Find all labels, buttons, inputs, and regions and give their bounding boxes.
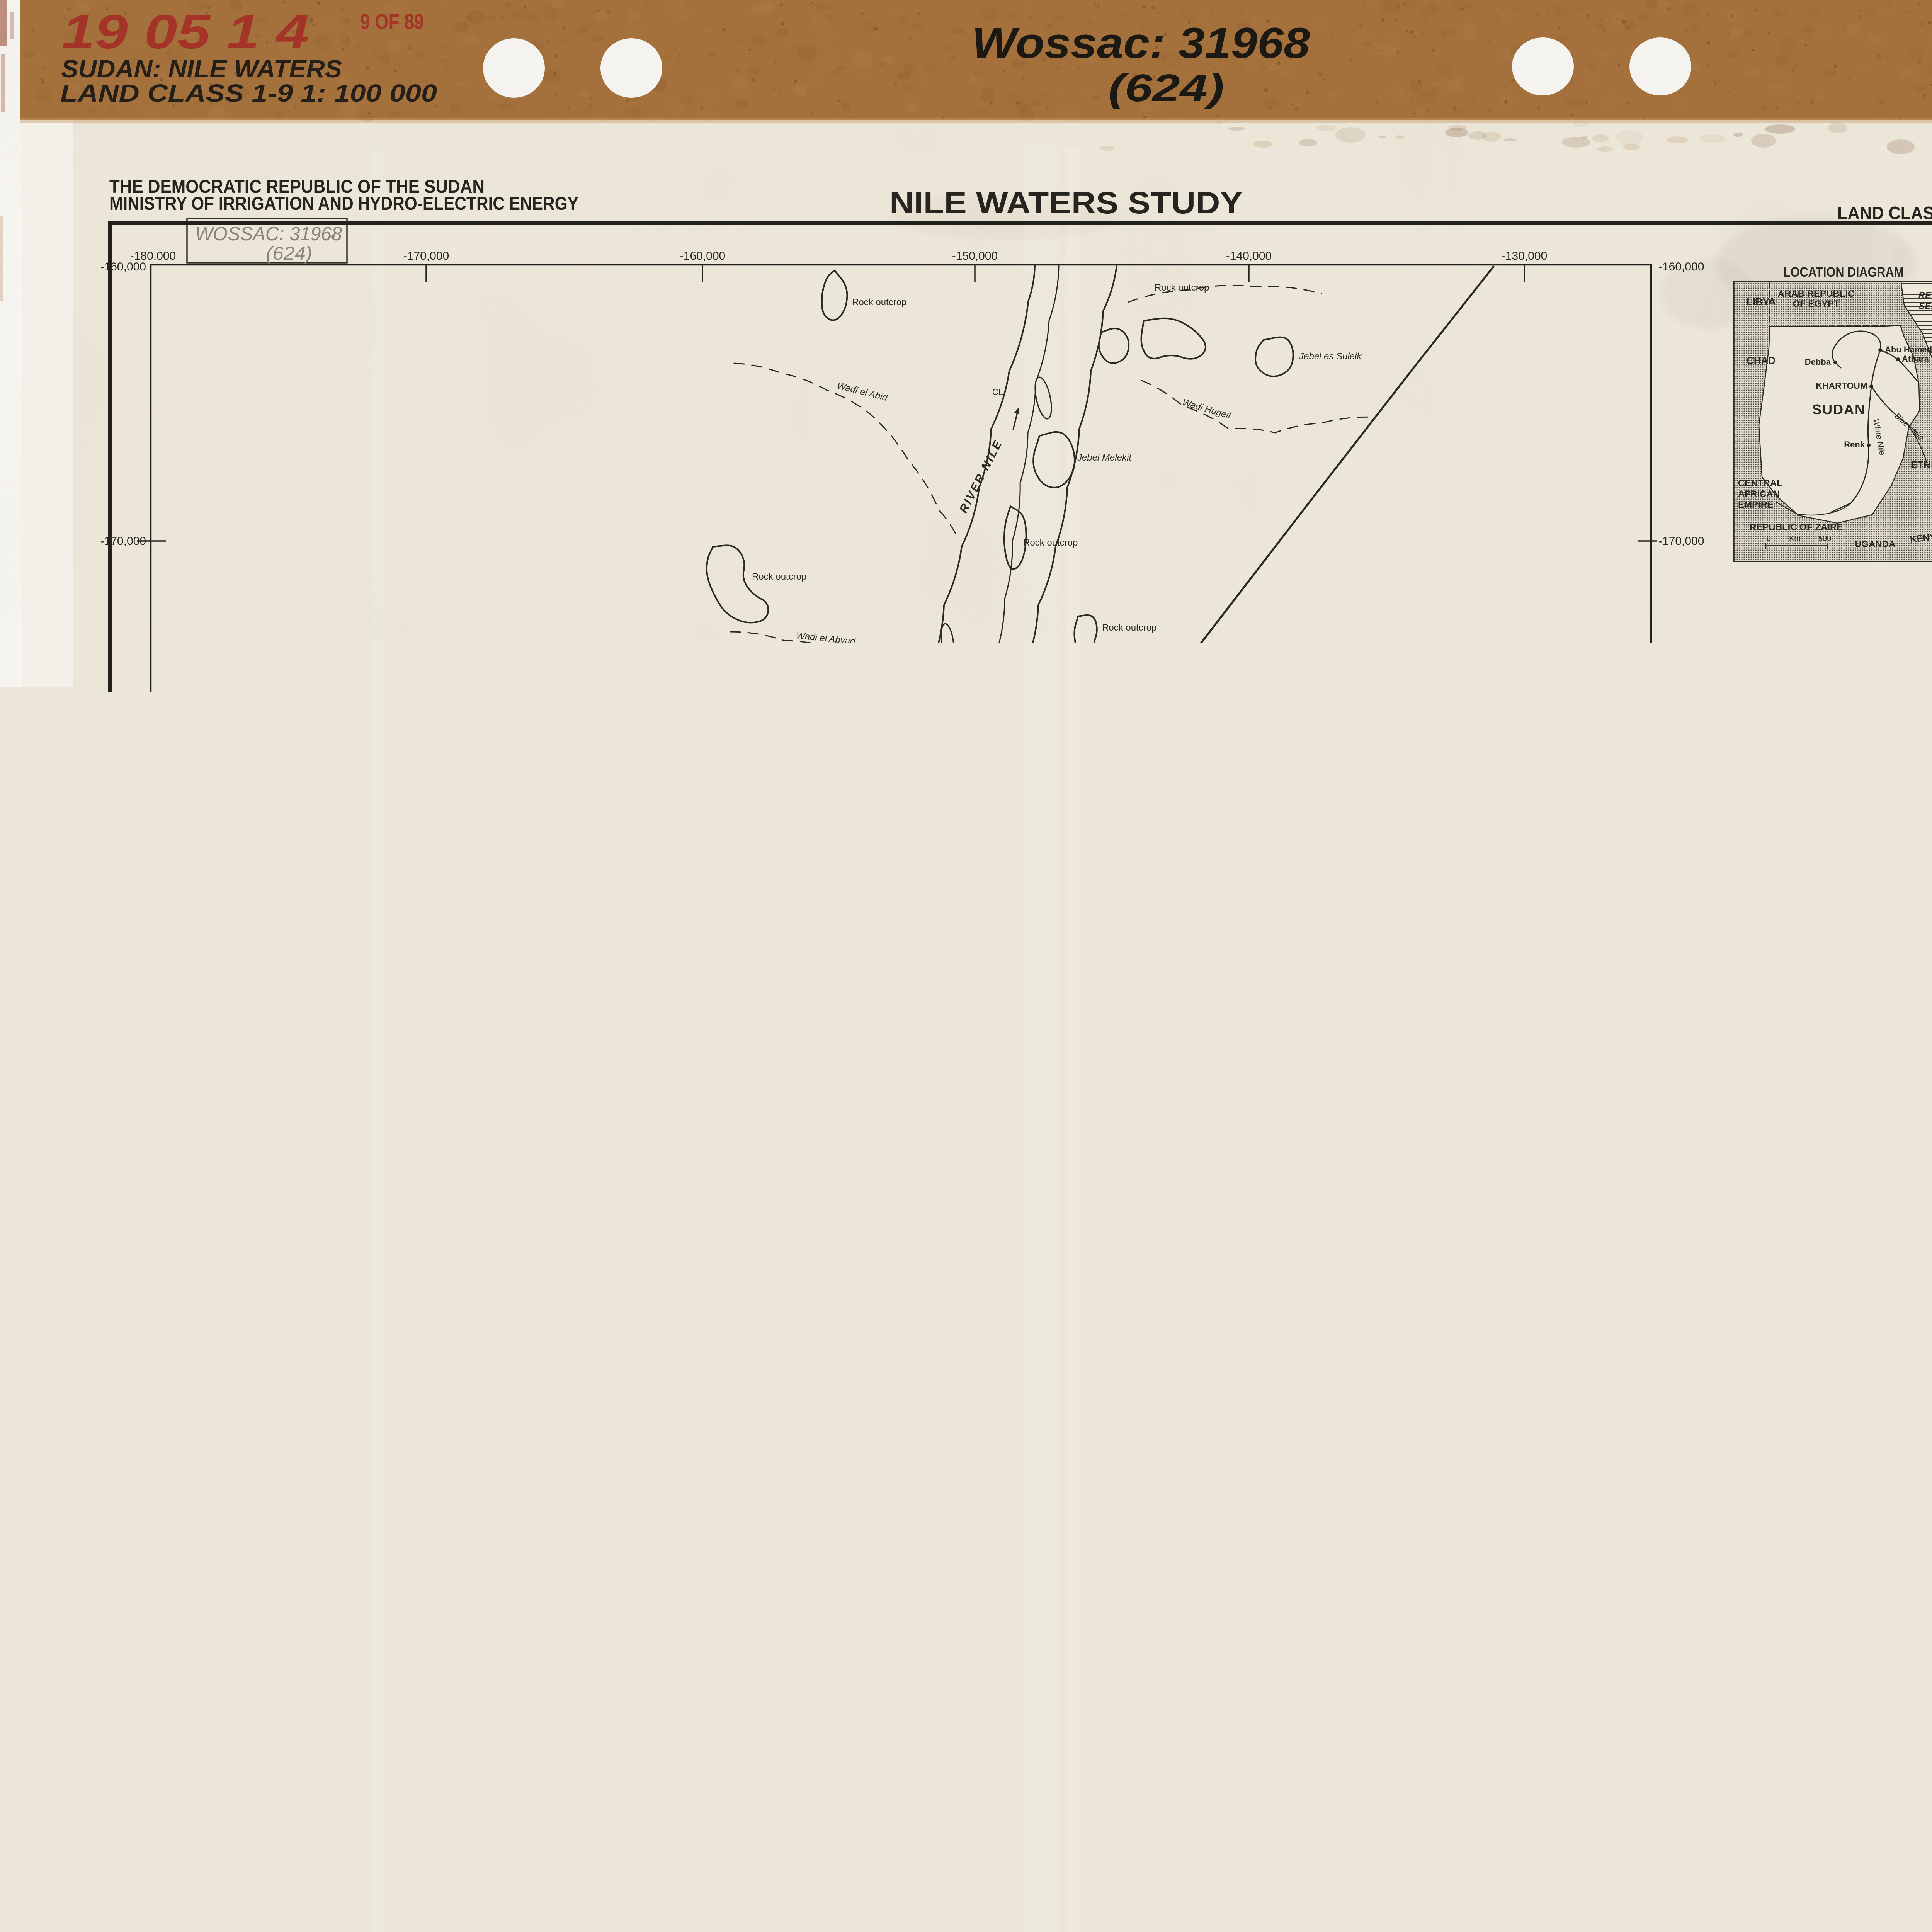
- svg-text:Dongola: Dongola: [1779, 721, 1808, 729]
- svg-text:16°00'N: 16°00'N: [1765, 835, 1793, 844]
- svg-text:Jebel Melekit: Jebel Melekit: [1077, 452, 1132, 463]
- svg-text:Singa: Singa: [1859, 910, 1879, 918]
- svg-text:3as: 3as: [954, 1791, 968, 1800]
- svg-text:Survey boundary.: Survey boundary.: [1699, 1911, 1777, 1923]
- svg-text:-160,000: -160,000: [1658, 260, 1704, 273]
- svg-text:Land classification boundary.: Land classification boundary.: [1702, 1518, 1830, 1530]
- svg-text:3l: 3l: [1222, 1816, 1228, 1825]
- svg-text:CL: CL: [850, 1667, 861, 1677]
- svg-text:500: 500: [1818, 534, 1831, 543]
- svg-text:Qubba: Qubba: [918, 1351, 951, 1362]
- svg-text:-210,000: -210,000: [1658, 1632, 1704, 1645]
- svg-text:Jebel Qureinat: Jebel Qureinat: [1308, 765, 1369, 775]
- svg-text:12°00'N: 12°00'N: [1766, 936, 1794, 945]
- svg-text:CL: CL: [854, 1526, 865, 1535]
- svg-text:SUDAN: NILE WATERS: SUDAN: NILE WATERS: [61, 55, 342, 83]
- svg-text:0: 0: [1767, 534, 1771, 543]
- svg-text:SHEET INDEX: SHEET INDEX: [1806, 688, 1878, 702]
- svg-text:Rock outcrop: Rock outcrop: [852, 297, 906, 308]
- svg-text:Kosti: Kosti: [1820, 908, 1838, 916]
- svg-text:-130,000: -130,000: [1502, 250, 1547, 262]
- svg-text:-160,000: -160,000: [100, 260, 146, 273]
- svg-text:Moderate: Moderate: [1702, 1210, 1744, 1222]
- svg-text:WOSSAC: 3196̴8: WOSSAC: 3196̴8: [195, 223, 342, 245]
- svg-text:KHARTOUM: KHARTOUM: [1816, 381, 1867, 391]
- svg-text:-180,000: -180,000: [1658, 809, 1704, 822]
- svg-text:Cultivated land: Cultivated land: [913, 1584, 975, 1594]
- svg-text:CL: CL: [993, 1439, 1004, 1449]
- svg-text:SUDAN: SUDAN: [1812, 401, 1866, 417]
- svg-text:Special use lands, mainly ver: Special use lands, mainly very coarse te…: [1702, 1231, 1890, 1243]
- svg-text:-160,000: -160,000: [680, 250, 725, 262]
- svg-text:TOPOGRAPHY: TOPOGRAPHY: [1798, 1733, 1876, 1745]
- svg-text:34°00'E: 34°00'E: [1862, 969, 1890, 977]
- svg-text:19 05 1 4: 19 05 1 4: [62, 5, 309, 59]
- svg-text:Power cable: Power cable: [1699, 1889, 1754, 1900]
- svg-text:Renk: Renk: [1844, 440, 1865, 449]
- svg-text:El Geili: El Geili: [957, 990, 992, 1001]
- svg-text:Abu Hamed: Abu Hamed: [1885, 345, 1932, 354]
- svg-text:16: 16: [1803, 748, 1811, 756]
- svg-text:2v: 2v: [1119, 1369, 1128, 1378]
- svg-text:Uneven micro-relief: Uneven micro-relief: [1702, 1435, 1789, 1447]
- svg-text:-190,000: -190,000: [1658, 1083, 1704, 1096]
- svg-text:CENTRAL: CENTRAL: [1738, 478, 1782, 488]
- svg-text:3: 3: [1848, 934, 1852, 942]
- svg-text:7: 7: [1838, 864, 1842, 872]
- svg-text:LAND CLASS 1-9 1: 100 000: LAND CLASS 1-9 1: 100 000: [60, 79, 437, 107]
- svg-text:High salinity: High salinity: [1702, 1328, 1756, 1339]
- svg-text:River: River: [1699, 1757, 1723, 1769]
- svg-text:-150,000: -150,000: [952, 250, 998, 262]
- svg-text:9 OF 8̴9: 9 OF 8̴9: [360, 9, 424, 34]
- svg-text:Wossac: 31968: Wossac: 31968: [972, 19, 1310, 67]
- svg-text:El Obeid: El Obeid: [1764, 909, 1794, 917]
- svg-text:Wad Seida: Wad Seida: [742, 1482, 794, 1494]
- svg-text:6a: 6a: [1014, 1565, 1023, 1574]
- svg-text:MINISTRY OF IRRIGATION AND HYD: MINISTRY OF IRRIGATION AND HYDRO-ELECTRI…: [109, 194, 578, 214]
- svg-text:Sampled auger site with classi: Sampled auger site with classification: [1702, 1540, 1869, 1552]
- svg-text:land: land: [938, 689, 955, 700]
- svg-text:Atbara: Atbara: [1854, 768, 1878, 776]
- svg-text:Unirrigable lands due to adver: Unirrigable lands due to adverse topogra…: [1702, 1277, 1901, 1289]
- svg-text:19: 19: [1769, 713, 1777, 721]
- svg-text:Railway.: Railway.: [1699, 1845, 1736, 1856]
- svg-text:Cultivated land: Cultivated land: [883, 1323, 944, 1333]
- svg-text:Cultivated land: Cultivated land: [883, 1081, 944, 1091]
- svg-text:CL: CL: [992, 387, 1003, 397]
- svg-text:CL: CL: [872, 1736, 883, 1745]
- svg-text:Melut: Melut: [1807, 969, 1826, 977]
- svg-text:18: 18: [1775, 738, 1783, 746]
- svg-text:Settlement.: Settlement.: [1699, 1800, 1750, 1811]
- svg-text:9: 9: [1828, 824, 1832, 832]
- svg-text:Where there is more than one l: Where there is more than one limitation …: [1702, 1448, 1932, 1460]
- svg-text:-200,000: -200,000: [1658, 1358, 1704, 1371]
- svg-text:Rock outcrop: Rock outcrop: [1102, 622, 1156, 633]
- svg-text:High clay content 71%–80%: High clay content 71%–80%: [1702, 1370, 1827, 1382]
- svg-text:-140,000: -140,000: [1226, 250, 1272, 262]
- svg-text:-220,000: -220,000: [1658, 1906, 1704, 1919]
- svg-text:UGANDA: UGANDA: [1855, 539, 1895, 549]
- svg-text:Km: Km: [1789, 534, 1801, 543]
- svg-text:17: 17: [1790, 764, 1798, 772]
- svg-text:LIBYA: LIBYA: [1747, 296, 1776, 308]
- svg-text:Motorable track: Motorable track: [1699, 1822, 1769, 1834]
- svg-text:CL: CL: [895, 678, 906, 688]
- svg-text:AFRICAN: AFRICAN: [1738, 489, 1780, 499]
- svg-text:SEA: SEA: [1918, 301, 1932, 311]
- svg-text:Debba: Debba: [1764, 761, 1787, 769]
- svg-text:OF EGYPT: OF EGYPT: [1793, 299, 1840, 309]
- svg-text:6: 6: [1838, 882, 1842, 890]
- svg-text:High clay content over 80%: High clay content over 80%: [1702, 1393, 1824, 1404]
- svg-text:LOCATION DIAGRAM: LOCATION DIAGRAM: [1783, 265, 1904, 280]
- svg-text:ARAB REPUBLIC: ARAB REPUBLIC: [1778, 289, 1855, 299]
- svg-text:(624): (624): [1108, 66, 1224, 110]
- svg-text:11: 11: [1858, 794, 1866, 803]
- svg-text:-170,000: -170,000: [1658, 535, 1704, 548]
- svg-text:Rock outcrop: Rock outcrop: [760, 1769, 815, 1780]
- svg-text:Coarse texture: Coarse texture: [1702, 1414, 1768, 1426]
- svg-text:10: 10: [1833, 807, 1841, 815]
- svg-text:Kadaro: Kadaro: [889, 1720, 925, 1731]
- svg-text:ETHIOPIA: ETHIOPIA: [1911, 459, 1932, 471]
- svg-text:Sampled pit site with classifi: Sampled pit site with classification: [1702, 1561, 1854, 1573]
- svg-text:12: 12: [1871, 782, 1879, 790]
- svg-text:High exchangeable sodium: High exchangeable sodium: [1702, 1306, 1823, 1318]
- svg-text:2: 2: [1848, 951, 1852, 959]
- svg-text:5: 5: [1842, 897, 1847, 905]
- svg-text:Rock outcrop: Rock outcrop: [1155, 282, 1209, 293]
- svg-text:32°00E: 32°00E: [1807, 709, 1832, 718]
- svg-text:-170,000: -170,000: [403, 250, 449, 262]
- svg-text:LAND CLASSIFICATION: LAND CLASSIFICATION: [1778, 1137, 1904, 1153]
- svg-text:Debba: Debba: [1805, 357, 1831, 367]
- svg-text:alkalinity and / or salinity o: alkalinity and / or salinity or excessiv…: [1702, 1258, 1919, 1270]
- svg-text:4: 4: [1844, 914, 1848, 922]
- svg-text:Atbara: Atbara: [1902, 354, 1929, 364]
- svg-text:13: 13: [1889, 771, 1897, 779]
- svg-text:14: 14: [1869, 747, 1878, 755]
- svg-text:Survey section line with numbe: Survey section line with number and benc…: [1702, 1583, 1919, 1595]
- svg-text:Pump scheme boundary: Pump scheme boundary: [1699, 1867, 1808, 1879]
- svg-text:Cultivated: Cultivated: [926, 678, 968, 688]
- svg-text:RED: RED: [1918, 290, 1932, 301]
- svg-text:NILE WATERS STUDY: NILE WATERS STUDY: [889, 185, 1243, 220]
- svg-text:(624): (624): [266, 243, 312, 264]
- svg-text:Rock outcrop: Rock outcrop: [763, 1633, 818, 1644]
- svg-text:High clay content 40%–70%: High clay content 40%–70%: [1702, 1349, 1827, 1361]
- svg-text:LAND CLASSIFICATION: LAND CLASSIFICATION: [1837, 203, 1932, 223]
- svg-text:1: 1: [1845, 975, 1849, 983]
- svg-text:Jebel es Suleik: Jebel es Suleik: [1299, 351, 1362, 362]
- svg-text:Seasonal stream.: Seasonal stream.: [1699, 1779, 1777, 1791]
- svg-text:EMPIRE: EMPIRE: [1738, 500, 1774, 510]
- svg-text:Unirrigable lands due mainly: Unirrigable lands due mainly to high: [1702, 1246, 1861, 1257]
- svg-text:Abu Hamed: Abu Hamed: [1854, 706, 1897, 714]
- svg-text:Good.: Good.: [1702, 1189, 1729, 1200]
- svg-text:8: 8: [1821, 851, 1826, 859]
- svg-text:15: 15: [1863, 718, 1872, 726]
- svg-text:Khogolab: Khogolab: [896, 1531, 944, 1542]
- svg-text:Very good: Very good: [1702, 1167, 1747, 1179]
- svg-text:CL: CL: [797, 1901, 808, 1911]
- svg-text:Jebel Sileitat: Jebel Sileitat: [1246, 1483, 1299, 1493]
- svg-text:Rock outcrop: Rock outcrop: [752, 571, 806, 582]
- svg-text:REPUBLIC OF ZAIRE: REPUBLIC OF ZAIRE: [1750, 522, 1843, 532]
- svg-text:Rock outcrop: Rock outcrop: [1023, 537, 1078, 548]
- svg-text:2a: 2a: [1119, 1925, 1128, 1932]
- svg-text:CHAD: CHAD: [1747, 355, 1776, 366]
- svg-text:Renk: Renk: [1827, 946, 1845, 954]
